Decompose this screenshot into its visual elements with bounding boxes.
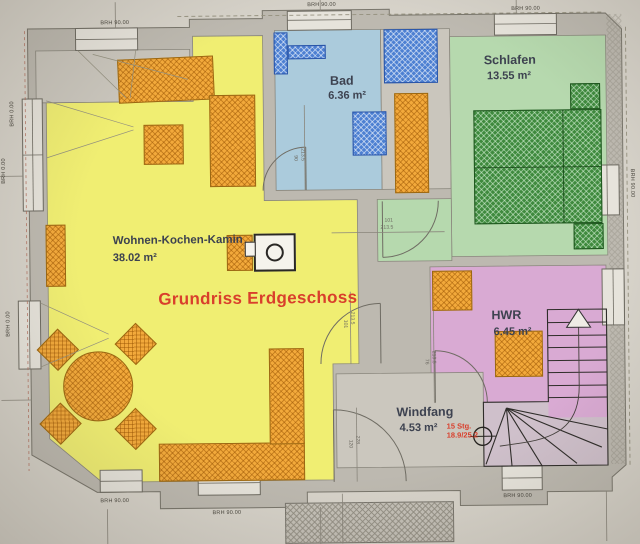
porch-pad-hatch bbox=[285, 502, 453, 544]
sill-label: BRH 90.00 bbox=[511, 6, 540, 12]
door-dim-schlafen-h: 213.5 bbox=[381, 225, 394, 230]
door-dim-schlafen-w: 101 bbox=[384, 218, 393, 223]
coffee-table bbox=[143, 124, 183, 164]
door-dim-bad-h: 213.5 bbox=[300, 148, 305, 161]
sill-label: BRH 90.00 bbox=[100, 20, 129, 26]
door-dim-hwr-w: 76 bbox=[424, 359, 429, 365]
sideboard bbox=[45, 225, 66, 287]
room-label-hwr: HWR bbox=[491, 308, 521, 322]
bed bbox=[473, 109, 602, 224]
plan-base-layer bbox=[0, 0, 640, 544]
hwr-appliance bbox=[432, 270, 472, 310]
room-label-bad: Bad bbox=[330, 74, 354, 88]
floorplan: Wohnen-Kochen-Kamin 38.02 m² Bad 6.36 m²… bbox=[0, 0, 640, 544]
sill-label: BRH 90.00 bbox=[307, 2, 336, 8]
fireplace-flue bbox=[245, 242, 256, 257]
room-label-wohnen: Wohnen-Kochen-Kamin bbox=[113, 234, 243, 247]
room-label-schlafen: Schlafen bbox=[484, 53, 536, 68]
bad-cabinet bbox=[394, 93, 429, 193]
room-area-bad: 6.36 m² bbox=[328, 90, 366, 102]
room-area-schlafen: 13.55 m² bbox=[487, 70, 531, 82]
room-windfang-floor bbox=[336, 372, 484, 468]
floorplan-photo: Wohnen-Kochen-Kamin 38.02 m² Bad 6.36 m²… bbox=[0, 0, 640, 544]
room-label-windfang: Windfang bbox=[396, 405, 453, 420]
stairs-note: 15 Stg.18.9/25.2 bbox=[447, 422, 478, 440]
sill-label: BRH 0.00 bbox=[5, 311, 11, 337]
sill-label: BRH 90.00 bbox=[629, 169, 635, 198]
door-dim-wohnen-w: 101 bbox=[343, 320, 348, 329]
door-dim-bad-w: 90 bbox=[293, 155, 298, 161]
door-dim-hwr-h: 213.5 bbox=[431, 351, 436, 364]
fireplace-circle bbox=[266, 243, 284, 261]
bad-vanity-top bbox=[288, 45, 326, 59]
door-dim-entrance-h: 228 bbox=[355, 436, 360, 445]
bad-vanity bbox=[273, 32, 287, 74]
nightstand bbox=[574, 223, 604, 249]
nightstand bbox=[570, 83, 600, 109]
dining-table bbox=[63, 351, 134, 422]
plan-title: Grundriss Erdgeschoss bbox=[158, 288, 357, 310]
sill-label: BRH 0.00 bbox=[9, 101, 15, 127]
room-area-hwr: 6.45 m² bbox=[494, 326, 532, 338]
sill-label: BRH 0.00 bbox=[1, 158, 7, 184]
sill-label: BRH 90.00 bbox=[100, 498, 129, 504]
sill-label: BRH 90.00 bbox=[212, 510, 241, 516]
door-dim-wohnen-h: 213.5 bbox=[349, 312, 354, 325]
room-area-windfang: 4.53 m² bbox=[400, 422, 438, 434]
sofa-chaise bbox=[209, 95, 256, 187]
bad-shower bbox=[383, 29, 438, 84]
kitchen-counter-side bbox=[269, 348, 305, 444]
door-dim-entrance-w: 120 bbox=[348, 440, 353, 449]
fireplace-icon bbox=[254, 233, 296, 271]
bad-washbasin bbox=[352, 111, 386, 155]
kitchen-counter-bottom bbox=[159, 442, 305, 482]
sofa-main bbox=[117, 55, 215, 103]
sill-label: BRH 90.00 bbox=[503, 493, 532, 499]
room-area-wohnen: 38.02 m² bbox=[113, 252, 157, 264]
